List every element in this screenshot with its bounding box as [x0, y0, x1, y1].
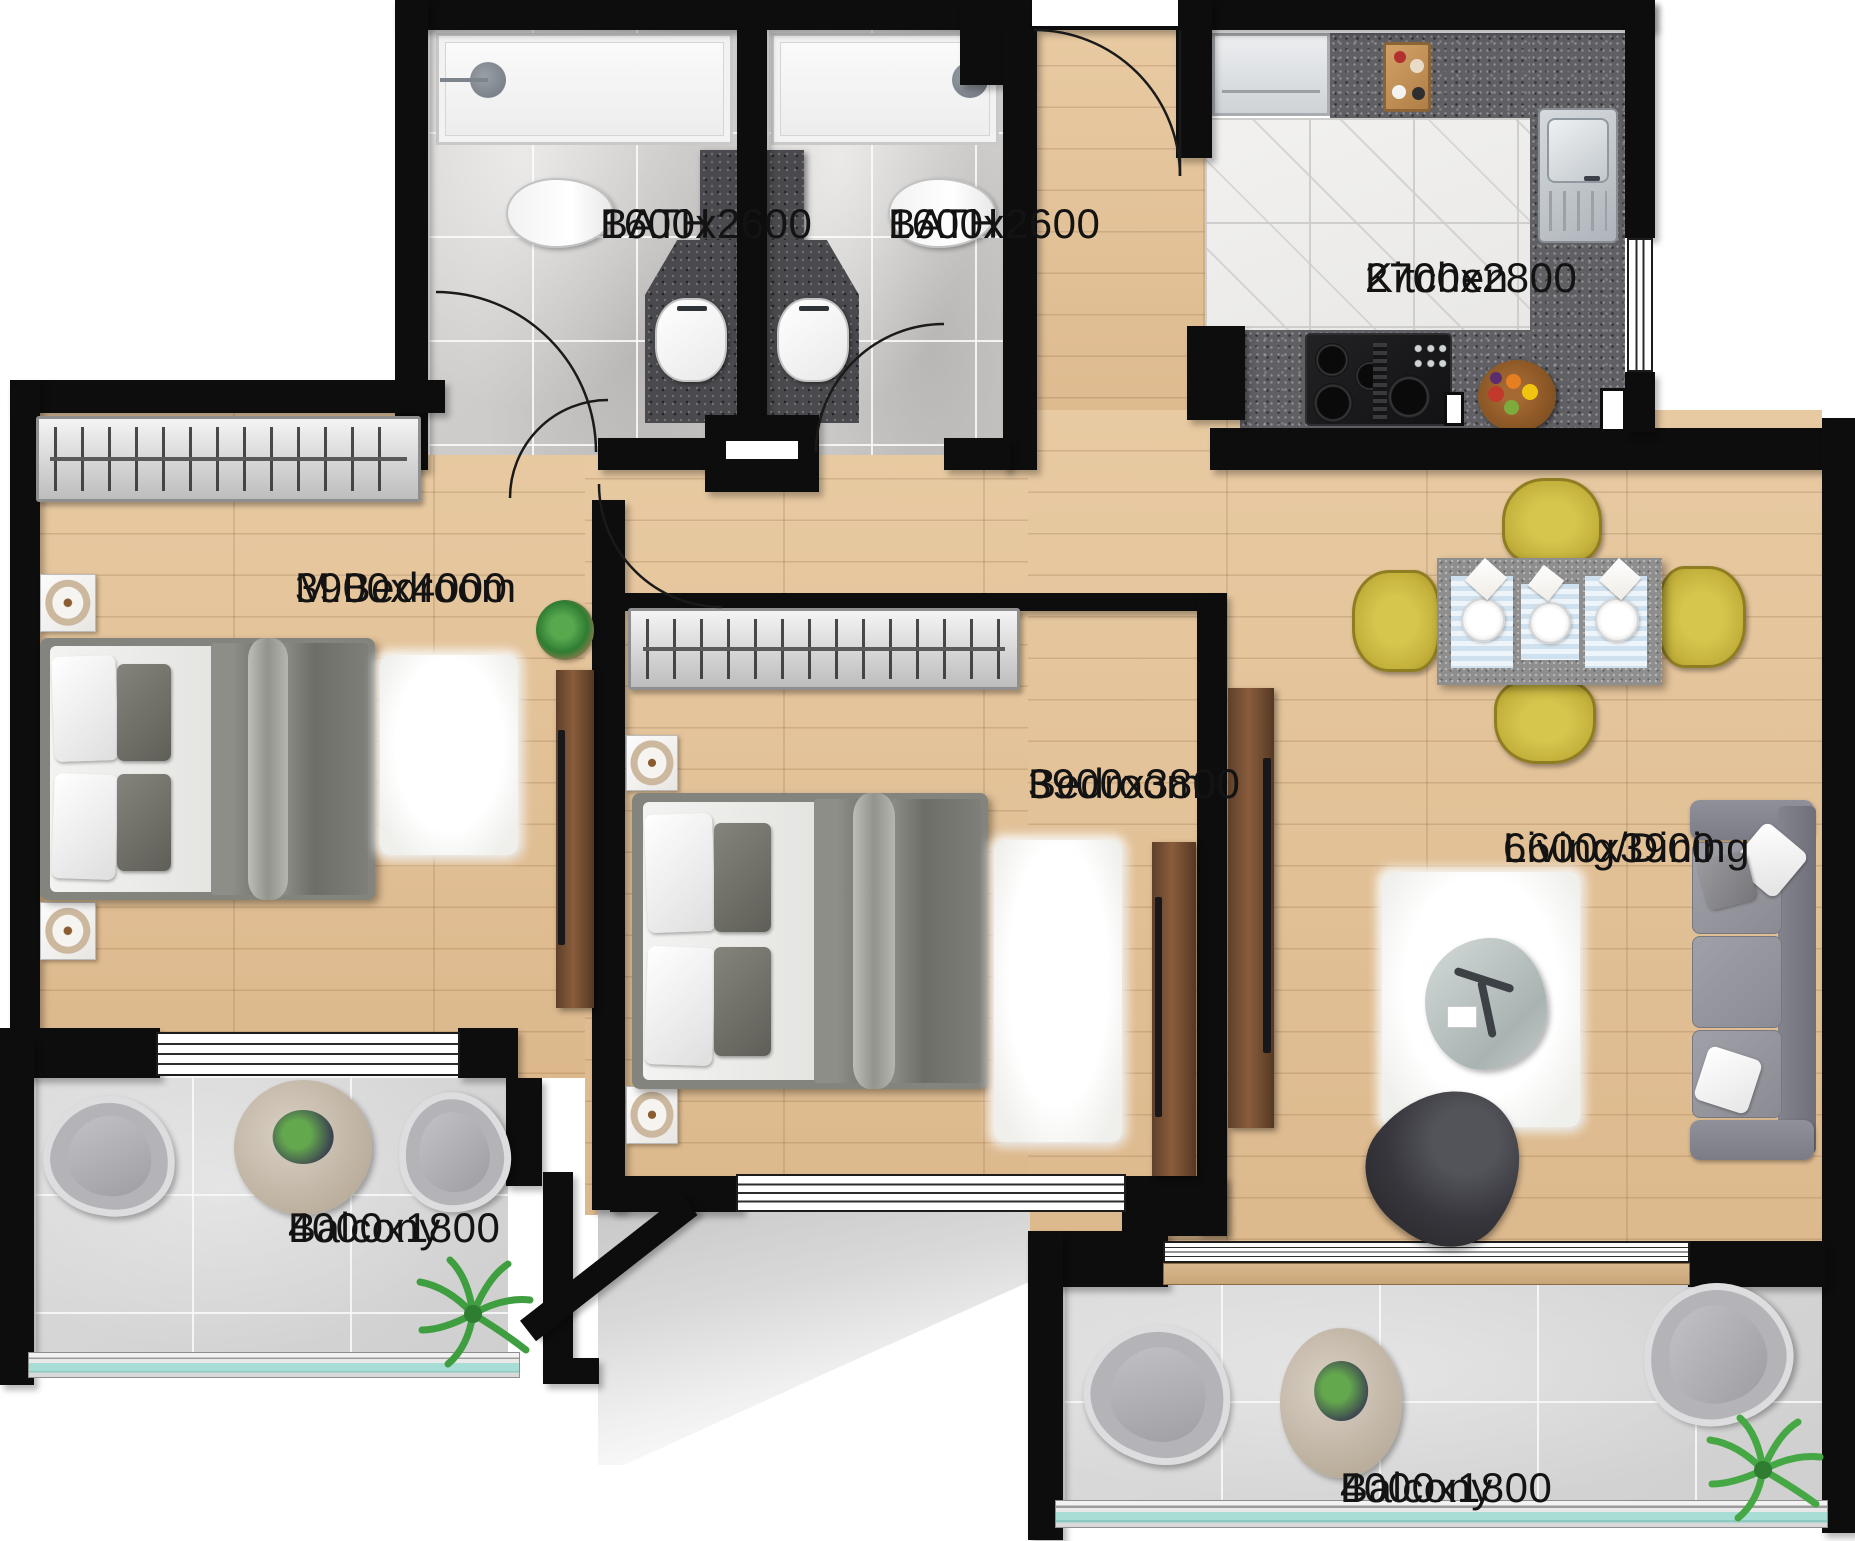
- dining-chair-east: [1658, 566, 1746, 668]
- entry-porch: [598, 1203, 1030, 1465]
- pillow-white: [52, 773, 119, 880]
- cooktop-vent: [1373, 343, 1387, 421]
- magazine: [1447, 1006, 1477, 1028]
- tray-item: [1412, 87, 1425, 100]
- sofa-cushion: [1692, 936, 1782, 1028]
- tv-bedroom: [1155, 897, 1162, 1117]
- kitchen-sink: [1538, 108, 1618, 243]
- room-dims: 3900x3800: [1028, 756, 1240, 811]
- room-dims: 4000x1800: [1340, 1460, 1552, 1515]
- coffee-table: [1425, 938, 1547, 1070]
- room-dims: 3900x4000: [295, 560, 507, 615]
- tv-panel-living: [1228, 688, 1274, 1128]
- palm-plant-right: [1698, 1412, 1828, 1527]
- pillow-gray: [117, 664, 171, 761]
- burner: [1313, 383, 1353, 423]
- pillow-white: [644, 946, 716, 1067]
- wall-kitchen-right-top: [1625, 0, 1655, 238]
- wall-bedroom-bottom-right: [1122, 1176, 1227, 1236]
- wall-bedroom-right: [1197, 593, 1227, 1233]
- wall-kitchen-right-bottom: [1625, 372, 1655, 432]
- wall-porch-vertical: [543, 1172, 573, 1368]
- fruit: [1504, 400, 1519, 415]
- window-bedroom: [736, 1174, 1126, 1212]
- wall-living-bottom-right: [1688, 1241, 1825, 1287]
- sink-faucet: [1584, 176, 1600, 181]
- burner: [1315, 343, 1349, 377]
- shower-arm-bath1: [440, 78, 488, 82]
- plate: [1529, 602, 1571, 644]
- bed-master: [40, 638, 375, 900]
- nightstand-master-top: [40, 574, 96, 632]
- sink-bowl: [1547, 118, 1609, 184]
- kitchen-tray: [1383, 42, 1431, 112]
- plate: [1461, 598, 1505, 642]
- fruit: [1488, 386, 1504, 402]
- duct-pillar: [723, 438, 801, 462]
- sofa-armrest-bottom: [1690, 1120, 1814, 1160]
- faucet: [799, 306, 829, 311]
- room-dims: 2700x2800: [1365, 250, 1577, 305]
- wall-under-bath1: [598, 438, 710, 470]
- sink-bath1: [655, 298, 727, 382]
- tray-item: [1410, 59, 1424, 73]
- tray-item: [1394, 51, 1406, 63]
- balcony-right-table: [1280, 1328, 1402, 1478]
- entry-opening: [1032, 0, 1178, 26]
- wall-kitchen-block: [1187, 326, 1245, 420]
- wall-balcony-right-left: [1028, 1231, 1063, 1540]
- wall-balcony-left-outer: [0, 1040, 34, 1385]
- tv-panel-master: [556, 670, 594, 1008]
- plate: [1595, 598, 1639, 642]
- dining-chair-north: [1502, 478, 1602, 564]
- pillow-white: [644, 813, 716, 934]
- pillow-gray: [714, 947, 771, 1057]
- plant-master: [536, 600, 594, 660]
- hangers: [54, 427, 403, 491]
- sink-drainboard: [1549, 191, 1607, 230]
- bed-throw: [853, 793, 896, 1089]
- wall-living-top: [1210, 428, 1855, 470]
- nightstand-master-bottom: [40, 902, 96, 960]
- tv-master: [558, 730, 565, 945]
- wardrobe-master: [36, 416, 421, 502]
- room-dims: 4000x1800: [288, 1200, 500, 1255]
- tv-living: [1263, 758, 1271, 1053]
- bed-throw: [248, 638, 288, 900]
- room-dims: 1600x2600: [888, 196, 1100, 251]
- sink-bath2: [777, 298, 849, 382]
- wall-right-outer: [1822, 418, 1855, 1533]
- bed-duvet: [814, 799, 981, 1083]
- window-kitchen: [1627, 238, 1653, 372]
- room-dims: 6600x3900: [1503, 820, 1715, 875]
- wall-entry-stub: [1176, 0, 1212, 158]
- tray-item: [1392, 85, 1406, 99]
- fruit: [1522, 384, 1538, 400]
- hangers: [646, 619, 1001, 680]
- pillow-gray: [117, 774, 171, 871]
- dining-chair-south: [1494, 680, 1596, 764]
- wall-mbed-top: [10, 380, 445, 413]
- window-living-sill: [1163, 1263, 1690, 1285]
- wall-balcony-left-inner: [506, 1078, 542, 1186]
- fruit: [1490, 372, 1502, 384]
- dining-table: [1437, 558, 1662, 685]
- fruit-bowl: [1478, 360, 1556, 432]
- faucet: [677, 306, 707, 311]
- wall-under-bath2: [944, 438, 1010, 470]
- window-living: [1163, 1241, 1690, 1263]
- burner: [1387, 375, 1431, 419]
- rug-master: [380, 655, 518, 855]
- cooktop-knobs: [1411, 341, 1447, 371]
- bed-duvet: [211, 643, 368, 895]
- wardrobe-bedroom: [628, 608, 1020, 690]
- bed-bedroom: [632, 793, 988, 1089]
- dining-chair-west: [1352, 570, 1440, 672]
- duct-wall-2: [1600, 388, 1626, 432]
- table-plant: [1314, 1361, 1368, 1421]
- fruit: [1506, 374, 1521, 389]
- floor-plan: BATH 1600x2600 BATH 1600x2600 Kitchen 27…: [0, 0, 1855, 1541]
- pillow-gray: [714, 823, 771, 933]
- room-dims: 1600x2600: [600, 196, 812, 251]
- nightstand-bedroom-bottom: [626, 1086, 678, 1144]
- rug-bedroom: [994, 840, 1122, 1142]
- balcony-left-table: [234, 1080, 372, 1215]
- palm-plant-left: [408, 1252, 538, 1377]
- table-leg-detail: [1477, 980, 1497, 1038]
- window-master-bedroom: [156, 1032, 460, 1076]
- wall-porch-stub: [543, 1358, 599, 1384]
- wall-mbed-bottom-right: [458, 1028, 518, 1078]
- wall-bedrooms-divider: [592, 500, 625, 1210]
- fridge: [1212, 33, 1330, 116]
- tv-panel-bedroom: [1152, 842, 1196, 1176]
- pillow-white: [52, 655, 119, 762]
- cooktop: [1305, 333, 1452, 426]
- table-plant: [273, 1110, 334, 1164]
- duct-wall-1: [1444, 392, 1464, 426]
- nightstand-bedroom-top: [626, 735, 678, 791]
